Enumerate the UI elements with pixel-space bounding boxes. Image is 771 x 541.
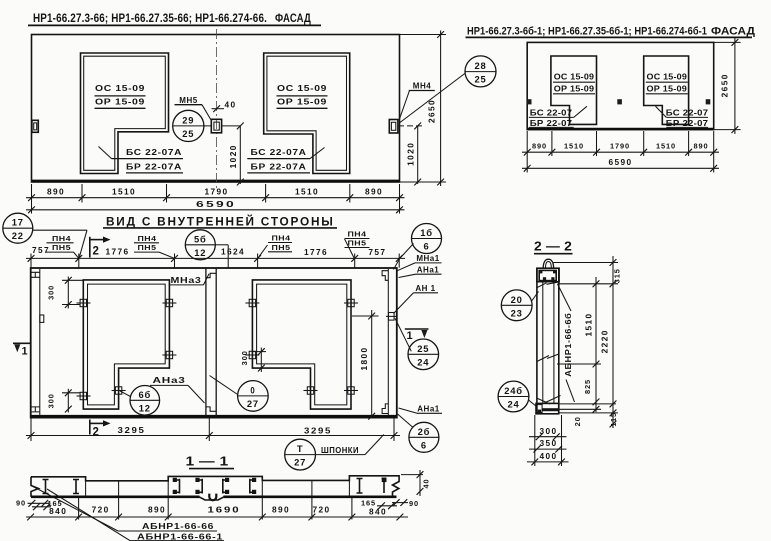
svg-text:2: 2 xyxy=(93,426,99,438)
svg-text:24: 24 xyxy=(507,399,519,410)
svg-text:890: 890 xyxy=(532,142,547,151)
svg-text:720: 720 xyxy=(92,504,110,514)
svg-text:АБНР1-66-6б: АБНР1-66-6б xyxy=(564,313,573,377)
svg-text:890: 890 xyxy=(272,504,290,514)
svg-text:757: 757 xyxy=(368,247,386,257)
svg-text:1510: 1510 xyxy=(112,187,136,197)
svg-text:25: 25 xyxy=(182,128,194,139)
svg-text:22: 22 xyxy=(12,230,24,241)
svg-text:БС 22-07: БС 22-07 xyxy=(530,108,573,117)
svg-text:1776: 1776 xyxy=(304,247,328,257)
svg-text:АБНР1-66-66: АБНР1-66-66 xyxy=(142,522,214,531)
svg-text:НР1-66.27.3-6б-1; НР1-66.27.35: НР1-66.27.3-6б-1; НР1-66.27.35-6б-1; НР1… xyxy=(467,25,707,37)
svg-text:27: 27 xyxy=(247,398,259,409)
svg-text:1510: 1510 xyxy=(564,142,584,151)
svg-text:ПН4: ПН4 xyxy=(348,229,368,238)
svg-text:890: 890 xyxy=(47,187,65,197)
svg-text:БР 22-07А: БР 22-07А xyxy=(126,163,182,172)
svg-text:890: 890 xyxy=(148,504,166,514)
svg-text:6: 6 xyxy=(423,241,429,252)
svg-text:ОС 15-09: ОС 15-09 xyxy=(554,73,595,82)
svg-text:2б: 2б xyxy=(418,426,431,437)
svg-text:1510: 1510 xyxy=(656,142,676,151)
svg-text:20: 20 xyxy=(511,294,523,305)
svg-text:115: 115 xyxy=(609,412,618,427)
svg-text:24: 24 xyxy=(417,356,429,367)
svg-text:2650: 2650 xyxy=(719,73,729,97)
svg-text:1624: 1624 xyxy=(221,247,245,257)
svg-text:ОС 15-09: ОС 15-09 xyxy=(647,73,688,82)
svg-text:БР 22-07: БР 22-07 xyxy=(530,119,573,128)
svg-text:25: 25 xyxy=(474,73,486,84)
svg-text:ПН4: ПН4 xyxy=(272,234,292,243)
svg-text:ПН5: ПН5 xyxy=(138,243,157,252)
svg-text:6: 6 xyxy=(421,439,427,450)
svg-text:17: 17 xyxy=(12,217,24,228)
svg-text:1 — 1: 1 — 1 xyxy=(186,454,229,468)
svg-text:ОР 15-09: ОР 15-09 xyxy=(647,85,688,94)
svg-text:350: 350 xyxy=(539,438,557,448)
svg-text:МН5: МН5 xyxy=(179,96,197,105)
svg-text:40: 40 xyxy=(421,478,430,488)
svg-text:2650: 2650 xyxy=(427,99,437,123)
svg-text:40: 40 xyxy=(225,99,237,109)
svg-text:890: 890 xyxy=(365,187,383,197)
svg-text:300: 300 xyxy=(539,426,557,436)
svg-text:890: 890 xyxy=(693,142,708,151)
svg-text:757: 757 xyxy=(32,245,50,255)
svg-text:2 — 2: 2 — 2 xyxy=(534,240,572,254)
svg-text:27: 27 xyxy=(294,457,306,468)
svg-text:ОР 15-09: ОР 15-09 xyxy=(95,97,145,106)
svg-text:23: 23 xyxy=(511,307,523,318)
svg-text:6б: 6б xyxy=(138,389,151,400)
svg-text:165: 165 xyxy=(361,499,376,508)
svg-text:ПН4: ПН4 xyxy=(52,234,72,243)
svg-text:6590: 6590 xyxy=(196,199,236,209)
svg-text:720: 720 xyxy=(312,504,330,514)
svg-text:1б: 1б xyxy=(420,227,433,238)
svg-text:БС 22-07А: БС 22-07А xyxy=(126,148,182,157)
svg-text:АНа1: АНа1 xyxy=(417,404,440,413)
svg-text:3295: 3295 xyxy=(118,425,146,435)
svg-text:400: 400 xyxy=(539,451,557,461)
svg-text:1776: 1776 xyxy=(105,247,129,257)
svg-text:825: 825 xyxy=(583,379,592,394)
svg-text:1: 1 xyxy=(22,345,28,357)
svg-text:24б: 24б xyxy=(504,385,523,396)
svg-text:300: 300 xyxy=(240,350,249,365)
svg-text:840: 840 xyxy=(369,507,387,517)
svg-text:БС 22-07: БС 22-07 xyxy=(666,108,709,117)
svg-text:АН 1: АН 1 xyxy=(415,284,435,293)
svg-text:840: 840 xyxy=(49,506,67,516)
svg-text:29: 29 xyxy=(182,114,194,125)
svg-text:ОС 15-09: ОС 15-09 xyxy=(95,84,145,93)
svg-text:ПН5: ПН5 xyxy=(348,239,367,248)
svg-text:1510: 1510 xyxy=(584,312,594,336)
svg-text:2220: 2220 xyxy=(600,329,610,353)
svg-text:1790: 1790 xyxy=(610,142,630,151)
svg-text:МНа3: МНа3 xyxy=(171,276,202,285)
svg-text:315: 315 xyxy=(613,268,622,283)
svg-text:1510: 1510 xyxy=(295,187,319,197)
svg-text:БР 22-07: БР 22-07 xyxy=(666,119,709,128)
svg-text:ШПОНКИ: ШПОНКИ xyxy=(321,446,359,455)
svg-text:ОС 15-09: ОС 15-09 xyxy=(277,84,327,93)
svg-text:6590: 6590 xyxy=(608,157,632,167)
svg-text:ПН5: ПН5 xyxy=(272,243,291,252)
svg-text:1790: 1790 xyxy=(204,187,228,197)
svg-text:28: 28 xyxy=(474,60,486,71)
svg-text:0: 0 xyxy=(250,384,255,395)
svg-text:Т: Т xyxy=(297,443,304,454)
svg-text:90: 90 xyxy=(16,498,26,507)
svg-text:1: 1 xyxy=(407,330,413,342)
svg-text:ОР 15-09: ОР 15-09 xyxy=(277,97,327,106)
svg-text:12: 12 xyxy=(139,402,151,413)
svg-text:25: 25 xyxy=(417,343,429,354)
svg-text:ПН5: ПН5 xyxy=(52,243,71,252)
svg-text:ФАСАД: ФАСАД xyxy=(711,25,755,37)
svg-text:1690: 1690 xyxy=(208,504,241,514)
svg-text:5б: 5б xyxy=(194,233,207,244)
svg-text:БР 22-07А: БР 22-07А xyxy=(251,163,307,172)
svg-text:МН4: МН4 xyxy=(413,82,431,91)
svg-text:300: 300 xyxy=(47,393,56,408)
svg-text:НР1-66.27.3-66; НР1-66.27.35-6: НР1-66.27.3-66; НР1-66.27.35-66; НР1-66.… xyxy=(33,11,267,25)
svg-text:МНа1: МНа1 xyxy=(416,254,439,263)
svg-text:2: 2 xyxy=(93,245,99,257)
svg-text:1020: 1020 xyxy=(228,144,238,168)
svg-text:12: 12 xyxy=(194,247,206,258)
svg-text:300: 300 xyxy=(47,285,56,300)
svg-text:90: 90 xyxy=(409,499,419,508)
svg-text:3295: 3295 xyxy=(304,425,332,435)
svg-text:ПН4: ПН4 xyxy=(138,234,158,243)
svg-text:АНа1: АНа1 xyxy=(417,265,440,274)
svg-text:1800: 1800 xyxy=(359,346,369,370)
svg-text:ФАСАД: ФАСАД xyxy=(275,13,311,25)
svg-text:20: 20 xyxy=(573,416,582,426)
svg-text:1020: 1020 xyxy=(406,142,416,166)
svg-text:АБНР1-66-66-1: АБНР1-66-66-1 xyxy=(137,532,223,541)
svg-text:ОР 15-09: ОР 15-09 xyxy=(554,85,595,94)
svg-text:АНа3: АНа3 xyxy=(153,376,186,385)
svg-text:БС 22-07А: БС 22-07А xyxy=(251,148,307,157)
